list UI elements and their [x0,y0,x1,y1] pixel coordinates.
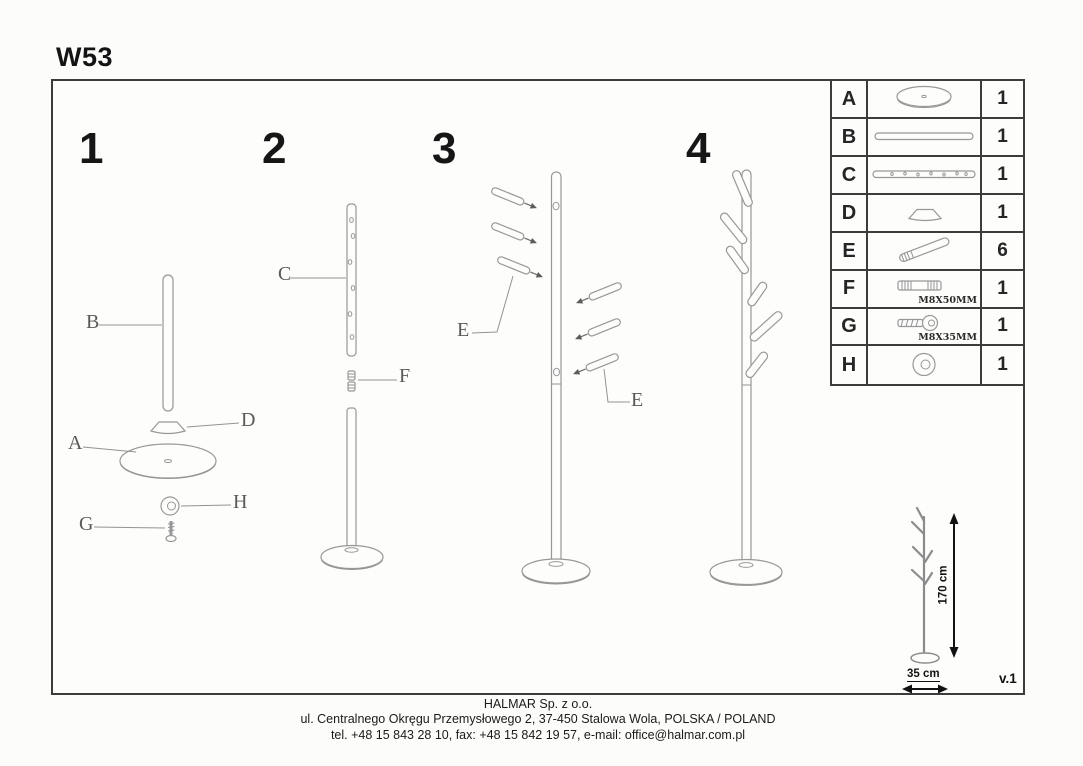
part-id-cell: E [832,233,868,271]
part-id-cell: G [832,309,868,347]
double-bolt-icon: M8X50MM [868,271,982,309]
step-4-number: 4 [686,127,710,171]
part-qty-cell: 1 [982,309,1023,347]
part-qty-cell: 6 [982,233,1023,271]
label-part-c: C [278,264,291,284]
step-1-number: 1 [79,127,103,171]
footer-contact: tel. +48 15 843 28 10, fax: +48 15 842 1… [51,728,1025,743]
step-2-number: 2 [262,127,286,171]
label-part-g: G [79,514,93,534]
part-qty-cell: 1 [982,81,1023,119]
upper-pole-icon [868,157,982,195]
version-label: v.1 [999,671,1017,686]
part-qty-cell: 1 [982,346,1023,384]
label-part-a: A [68,433,82,453]
label-part-h: H [233,492,247,512]
screw-icon: M8X35MM [868,309,982,347]
part-id-cell: H [832,346,868,384]
label-part-e-left: E [457,320,469,340]
page-title: W53 [56,42,113,73]
part-id-cell: F [832,271,868,309]
footer-company: HALMAR Sp. z o.o. [51,697,1025,712]
label-part-d: D [241,410,255,430]
height-dimension-label: 170 cm [938,565,950,604]
washer-icon [868,346,982,384]
screw-spec-label: M8X35MM [918,332,977,343]
part-id-cell: D [832,195,868,233]
part-qty-cell: 1 [982,119,1023,157]
part-id-cell: C [832,157,868,195]
part-qty-cell: 1 [982,271,1023,309]
footer: HALMAR Sp. z o.o. ul. Centralnego Okręgu… [51,697,1025,743]
parts-table: A 1 B 1 C [830,79,1025,386]
part-id-cell: B [832,119,868,157]
footer-address: ul. Centralnego Okręgu Przemysłowego 2, … [51,712,1025,727]
part-qty-cell: 1 [982,195,1023,233]
part-qty-cell: 1 [982,157,1023,195]
label-part-b: B [86,312,99,332]
lower-pole-icon [868,119,982,157]
bolt-spec-label: M8X50MM [918,295,977,306]
label-part-e-right: E [631,390,643,410]
assembly-instruction-sheet: W53 1 2 3 4 [0,0,1083,766]
part-id-cell: A [832,81,868,119]
width-dimension-label: 35 cm [907,668,940,682]
hook-peg-icon [868,233,982,271]
base-disc-icon [868,81,982,119]
step-3-number: 3 [432,127,456,171]
cap-icon [868,195,982,233]
label-part-f: F [399,366,410,386]
